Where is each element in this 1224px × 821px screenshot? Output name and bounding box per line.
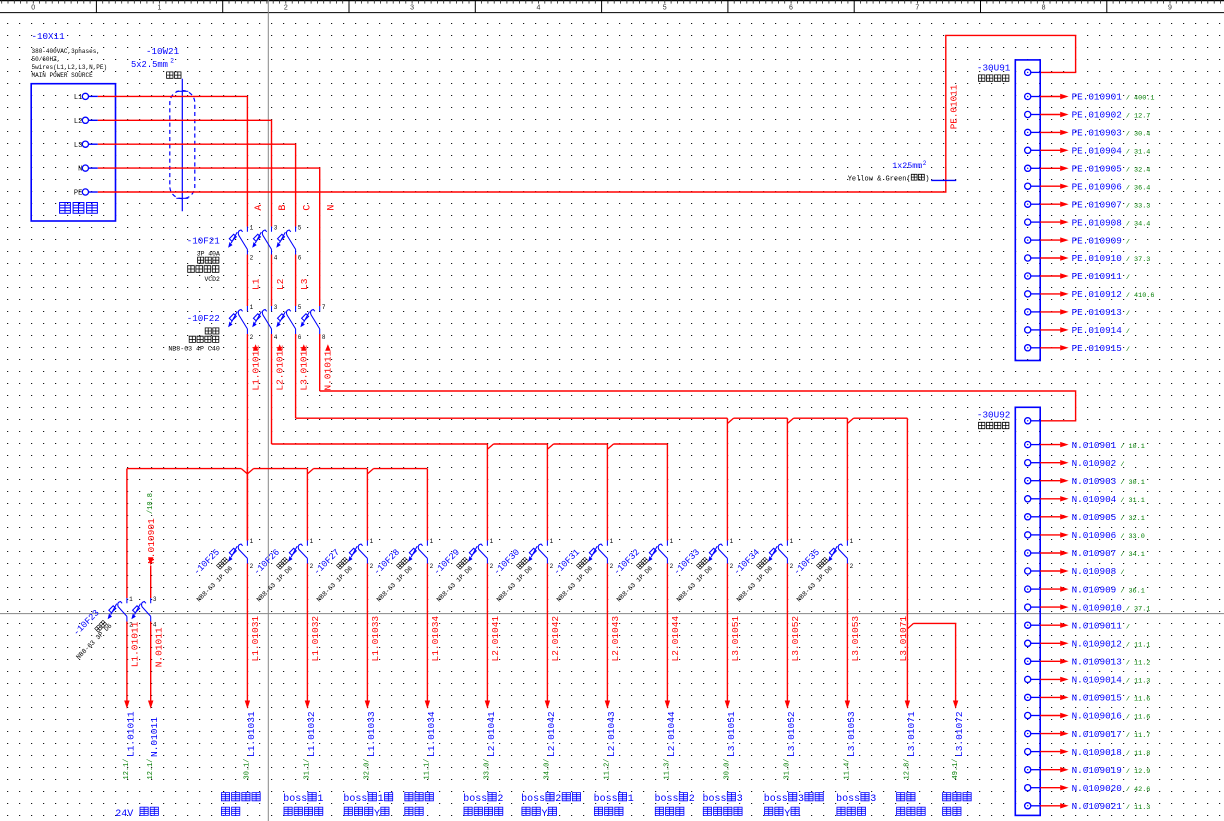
svg-text:NB8-63 4P C40: NB8-63 4P C40 — [168, 345, 219, 352]
svg-text:50/60HZ,: 50/60HZ, — [32, 56, 61, 63]
svg-text:L2: L2 — [275, 278, 286, 290]
svg-text:boss: boss — [836, 793, 860, 805]
svg-text:2: 2 — [555, 794, 561, 805]
svg-text:3: 3 — [274, 224, 278, 231]
svg-text:Yellow & Green: Yellow & Green — [848, 175, 907, 183]
svg-text:L1.01034: L1.01034 — [430, 616, 441, 662]
svg-text:3: 3 — [870, 794, 876, 805]
svg-text:1x25mm: 1x25mm — [892, 162, 922, 171]
svg-text:12.1/: 12.1/ — [123, 758, 131, 779]
svg-text:-30U92: -30U92 — [977, 410, 1010, 421]
svg-text:1: 1 — [790, 538, 794, 545]
svg-text:380-400VAC,3phases,: 380-400VAC,3phases, — [32, 48, 100, 55]
svg-text:L2.01042: L2.01042 — [546, 711, 557, 757]
svg-text:6: 6 — [298, 334, 302, 341]
svg-text:L1.01011: L1.01011 — [130, 621, 141, 667]
svg-text:2: 2 — [497, 794, 503, 805]
svg-text:1: 1 — [670, 538, 674, 545]
svg-text:2: 2 — [923, 160, 927, 167]
svg-text:boss: boss — [655, 793, 679, 805]
svg-text:L3.01072: L3.01072 — [954, 711, 965, 757]
svg-text:L1.01033: L1.01033 — [370, 616, 381, 662]
svg-text:N.0109011 /: N.0109011 / — [1072, 620, 1130, 631]
svg-text:L2.01041: L2.01041 — [486, 711, 497, 757]
svg-text:11.2/: 11.2/ — [604, 758, 612, 779]
svg-text:49.1/: 49.1/ — [952, 758, 960, 779]
svg-text:L1.01032: L1.01032 — [306, 711, 317, 757]
svg-text:PE.010911 /: PE.010911 / — [1072, 271, 1130, 282]
svg-text:6: 6 — [298, 255, 302, 262]
svg-text:3: 3 — [410, 5, 414, 12]
svg-text:B: B — [278, 205, 289, 211]
svg-text:L1.01033: L1.01033 — [366, 711, 377, 757]
svg-text:1: 1 — [730, 538, 734, 545]
svg-text:L3.01011: L3.01011 — [299, 345, 310, 391]
svg-text:L1: L1 — [251, 278, 262, 290]
svg-text:-10F21: -10F21 — [187, 236, 221, 247]
svg-text:-30U91: -30U91 — [977, 62, 1011, 73]
svg-text:L2.01043: L2.01043 — [610, 616, 621, 662]
svg-text:boss: boss — [703, 793, 727, 805]
svg-text:32.0/: 32.0/ — [364, 758, 372, 779]
svg-text:5wires(L1,L2,L3,N,PE): 5wires(L1,L2,L3,N,PE) — [32, 64, 108, 71]
svg-text:VCD2: VCD2 — [204, 276, 220, 283]
svg-text:N: N — [78, 166, 82, 174]
svg-text:4: 4 — [274, 255, 278, 262]
svg-text:PE.010915 /: PE.010915 / — [1072, 343, 1130, 354]
svg-text:L3.01052: L3.01052 — [786, 711, 797, 757]
svg-text:L3.01053: L3.01053 — [846, 711, 857, 757]
svg-text:1: 1 — [250, 304, 254, 311]
svg-text:PE.010914 /: PE.010914 / — [1072, 325, 1130, 336]
svg-text:3: 3 — [153, 596, 157, 603]
svg-text:N.01011: N.01011 — [153, 627, 164, 667]
svg-text:1: 1 — [158, 5, 162, 12]
svg-text:boss: boss — [343, 793, 367, 805]
svg-text:2: 2 — [689, 794, 695, 805]
svg-text:PE.01011: PE.01011 — [948, 84, 959, 129]
svg-text:2: 2 — [250, 255, 254, 262]
svg-text:L1.01011: L1.01011 — [125, 711, 136, 757]
svg-text:11.1/: 11.1/ — [424, 758, 432, 779]
svg-text:L1.01034: L1.01034 — [426, 711, 437, 757]
svg-text:3P 40A: 3P 40A — [197, 251, 220, 258]
svg-text:-10F22: -10F22 — [187, 313, 220, 324]
svg-text:L2.01042: L2.01042 — [550, 616, 561, 662]
svg-text:6: 6 — [789, 5, 793, 12]
svg-text:L1.01031: L1.01031 — [250, 616, 261, 662]
svg-text:MAIN POWER SOURCE: MAIN POWER SOURCE — [32, 72, 94, 79]
svg-text:L3.01071: L3.01071 — [906, 711, 917, 757]
svg-text:1: 1 — [129, 596, 133, 603]
svg-text:1: 1 — [310, 538, 314, 545]
svg-text:Y: Y — [542, 809, 548, 820]
svg-text:5: 5 — [298, 224, 302, 231]
svg-text:boss: boss — [283, 793, 307, 805]
svg-text:L2.01044: L2.01044 — [670, 616, 681, 662]
svg-text:34.0/: 34.0/ — [544, 758, 552, 779]
svg-text:L3: L3 — [74, 142, 82, 150]
svg-text:-10W21: -10W21 — [146, 46, 180, 57]
svg-text:L2.01043: L2.01043 — [606, 711, 617, 757]
svg-text:/10.8: /10.8 — [147, 493, 155, 514]
svg-text:boss: boss — [521, 793, 545, 805]
svg-text:1: 1 — [628, 794, 634, 805]
svg-text:L3.01071: L3.01071 — [898, 616, 909, 662]
svg-text:PE: PE — [74, 190, 82, 198]
svg-text:L2.01011: L2.01011 — [275, 345, 286, 391]
svg-text:3: 3 — [798, 794, 804, 805]
svg-text:30.0/: 30.0/ — [724, 758, 732, 779]
svg-text:Y: Y — [374, 809, 380, 820]
svg-text:0: 0 — [31, 5, 35, 12]
svg-text:Y: Y — [784, 809, 790, 820]
svg-text:2: 2 — [170, 58, 174, 65]
svg-text:(: ( — [907, 175, 911, 183]
svg-text:5: 5 — [298, 304, 302, 311]
svg-text:L3.01051: L3.01051 — [730, 616, 741, 662]
svg-text:9: 9 — [1168, 5, 1172, 12]
svg-text:L1.01032: L1.01032 — [310, 616, 321, 662]
svg-text:12.8/: 12.8/ — [904, 758, 912, 779]
svg-text:L2.01041: L2.01041 — [490, 616, 501, 662]
svg-text:2: 2 — [250, 334, 254, 341]
svg-text:1: 1 — [490, 538, 494, 545]
svg-text:L3.01053: L3.01053 — [850, 616, 861, 662]
svg-text:N.01011: N.01011 — [323, 350, 334, 390]
svg-text:2: 2 — [850, 563, 854, 570]
svg-text:1: 1 — [378, 794, 384, 805]
svg-text:31.1/: 31.1/ — [304, 758, 312, 779]
svg-text:N.01011: N.01011 — [149, 717, 160, 757]
svg-text:5: 5 — [663, 5, 667, 12]
svg-text:4: 4 — [536, 5, 540, 12]
svg-text:boss: boss — [594, 793, 618, 805]
svg-text:11.3/: 11.3/ — [664, 758, 672, 779]
svg-text:-10X11: -10X11 — [32, 31, 66, 42]
svg-text:N.010901: N.010901 — [146, 518, 157, 564]
svg-text:1: 1 — [250, 538, 254, 545]
svg-text:L1.01011: L1.01011 — [250, 345, 261, 391]
svg-text:1: 1 — [250, 224, 254, 231]
svg-text:1: 1 — [610, 538, 614, 545]
svg-text:boss: boss — [463, 793, 487, 805]
svg-text:33.0/: 33.0/ — [484, 758, 492, 779]
svg-text:N: N — [326, 205, 337, 211]
svg-text:L3: L3 — [299, 278, 310, 290]
svg-text:2: 2 — [284, 5, 288, 12]
svg-text:C: C — [302, 205, 313, 211]
svg-text:5x2.5mm: 5x2.5mm — [131, 60, 168, 70]
svg-text:A: A — [254, 205, 265, 211]
svg-text:PE.010909 /: PE.010909 / — [1072, 235, 1130, 246]
svg-text:7: 7 — [915, 5, 919, 12]
svg-text:3: 3 — [274, 304, 278, 311]
svg-text:L3.01052: L3.01052 — [790, 616, 801, 662]
svg-text:L1: L1 — [74, 94, 82, 102]
svg-text:4: 4 — [274, 334, 278, 341]
svg-text:31.0/: 31.0/ — [784, 758, 792, 779]
svg-text:8: 8 — [1042, 5, 1046, 12]
svg-text:30.1/: 30.1/ — [244, 758, 252, 779]
svg-text:7: 7 — [322, 304, 326, 311]
svg-text:12.1/: 12.1/ — [147, 758, 155, 779]
svg-text:L2.01044: L2.01044 — [666, 711, 677, 757]
svg-text:boss: boss — [764, 793, 788, 805]
svg-text:24V: 24V — [115, 809, 133, 820]
svg-text:): ) — [925, 175, 929, 183]
svg-text:L1.01031: L1.01031 — [246, 711, 257, 757]
svg-text:1: 1 — [850, 538, 854, 545]
svg-text:1: 1 — [317, 794, 323, 805]
svg-text:PE.010913 /: PE.010913 / — [1072, 307, 1130, 318]
svg-text:8: 8 — [322, 334, 326, 341]
svg-text:1: 1 — [430, 538, 434, 545]
svg-text:3: 3 — [737, 794, 743, 805]
svg-text:1: 1 — [550, 538, 554, 545]
svg-text:1: 1 — [370, 538, 374, 545]
svg-text:11.4/: 11.4/ — [844, 758, 852, 779]
svg-text:L2: L2 — [74, 118, 82, 126]
svg-text:L3.01051: L3.01051 — [726, 711, 737, 757]
